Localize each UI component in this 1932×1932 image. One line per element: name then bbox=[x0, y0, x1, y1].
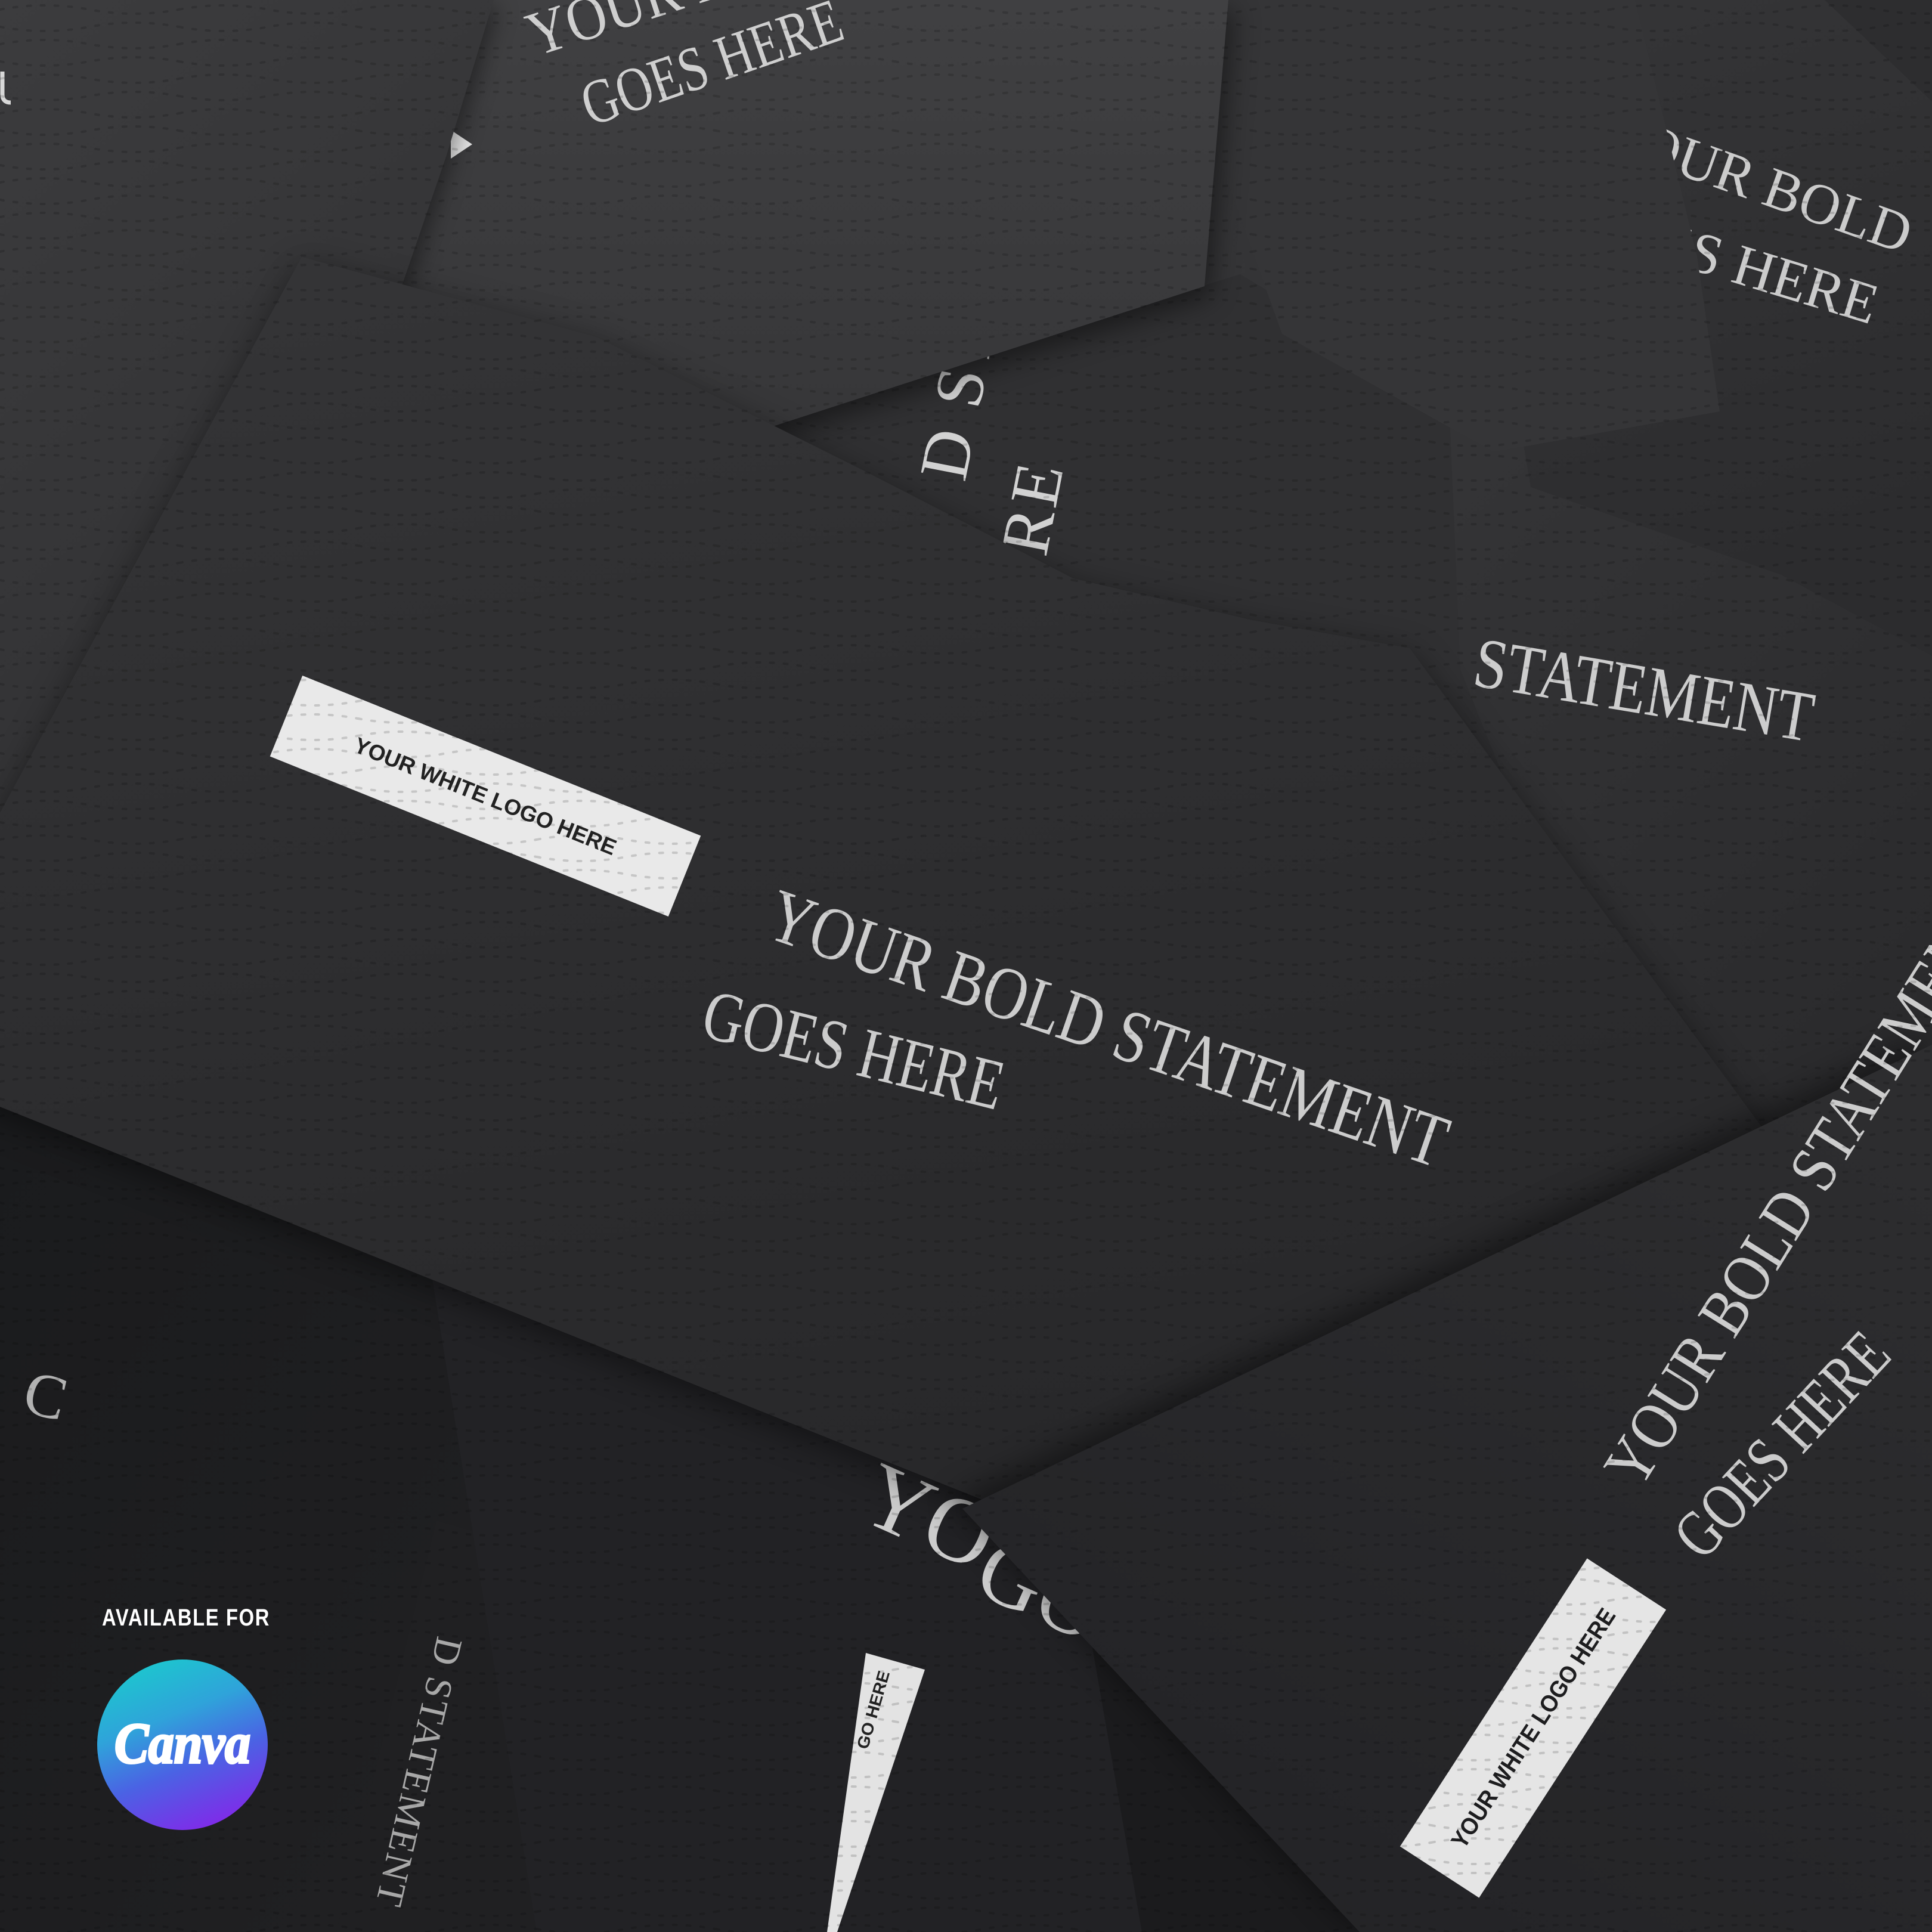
svg-text:AVAILABLE FOR: AVAILABLE FOR bbox=[102, 1605, 270, 1631]
svg-text:Canva: Canva bbox=[114, 1711, 250, 1775]
